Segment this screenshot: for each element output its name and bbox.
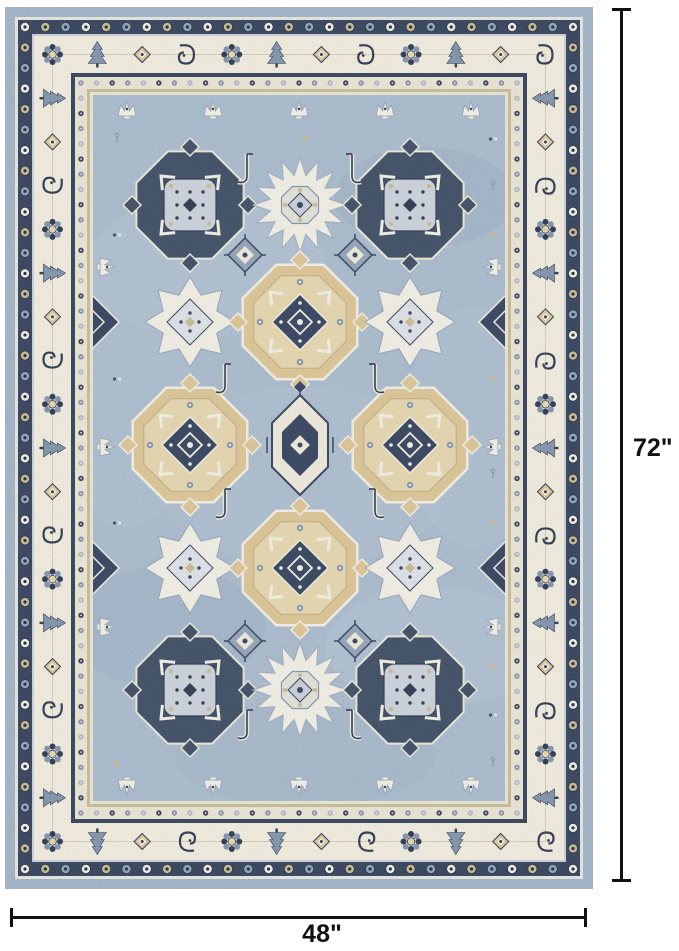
- height-dimension-label: 72": [633, 434, 673, 463]
- rug-canvas: [5, 7, 593, 889]
- product-photo: 72" 48": [0, 0, 679, 951]
- height-dimension-line: [620, 8, 623, 882]
- height-dimension-cap-top: [612, 8, 631, 11]
- width-dimension-cap-left: [10, 908, 13, 927]
- width-dimension-line: [10, 916, 587, 919]
- width-dimension-cap-right: [584, 908, 587, 927]
- width-dimension-label: 48": [302, 920, 342, 949]
- rug-image: [5, 7, 593, 889]
- height-dimension-cap-bottom: [612, 879, 631, 882]
